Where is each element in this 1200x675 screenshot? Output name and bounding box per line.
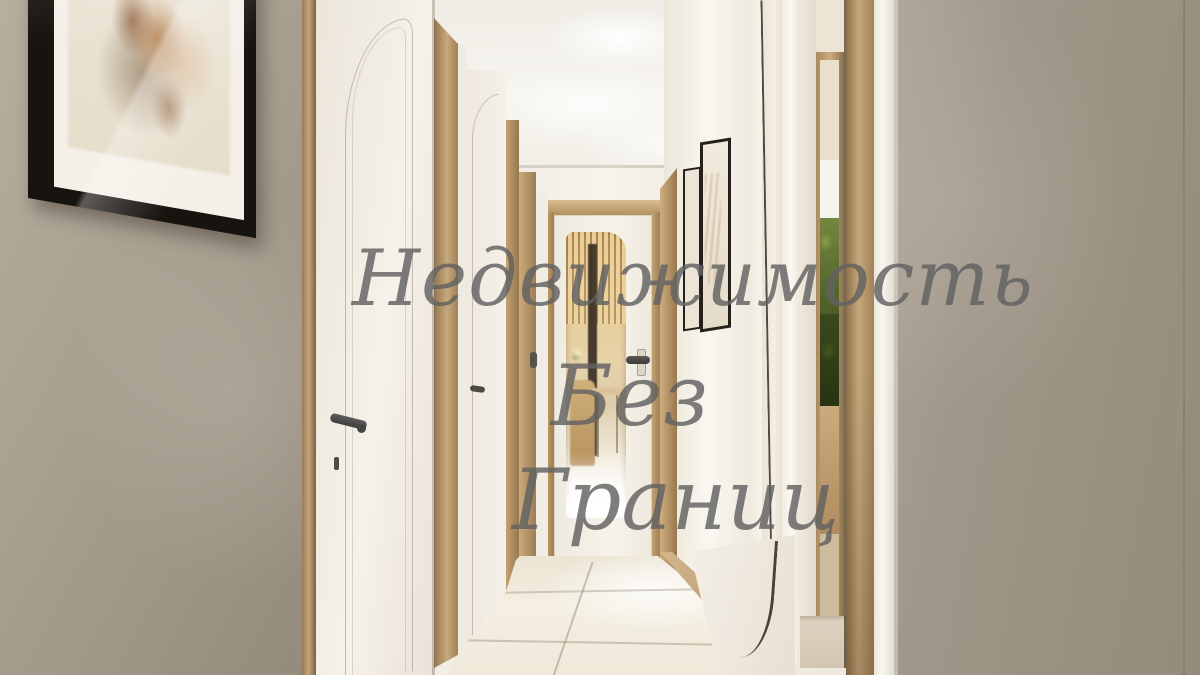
watermark-line-3: Границ	[512, 458, 840, 542]
wardrobe-stile	[874, 0, 894, 675]
end-door-architrave-top	[540, 200, 666, 215]
reflection-greenery-dark	[820, 314, 839, 406]
wardrobe-wood-pilaster	[846, 0, 874, 675]
tile-grout-line	[552, 562, 594, 675]
watermark-line-1: Недвижимость	[352, 240, 1034, 318]
framed-botanical-artwork	[28, 0, 256, 238]
wardrobe-mirror-panel-2	[800, 0, 846, 668]
door-1-architrave	[300, 0, 316, 675]
door-2-casing	[458, 44, 466, 660]
reflection-sky	[820, 160, 839, 218]
door-1-handle-hub	[357, 424, 366, 433]
wall-seam-line	[1183, 0, 1185, 675]
hallway-render: Недвижимость Без Границ	[0, 0, 1200, 675]
mirror-reflection-wall	[800, 0, 816, 668]
mirror-reflection-floor	[800, 616, 846, 668]
artwork-glass-glare	[28, 0, 256, 238]
tile-grout-line	[500, 588, 705, 593]
door-1-panel-moulding-inner	[352, 26, 406, 675]
reflection-interior	[820, 60, 839, 160]
right-foreground-wall	[894, 0, 1200, 675]
wall-edge-highlight	[894, 0, 898, 675]
door-1-keyhole	[334, 457, 339, 470]
watermark-line-2: Без	[551, 354, 708, 438]
door-2-architrave	[434, 18, 458, 668]
door-3-handle	[530, 352, 537, 368]
door-2-panel-moulding	[472, 94, 499, 640]
door-1-edge-shadow	[432, 0, 435, 675]
